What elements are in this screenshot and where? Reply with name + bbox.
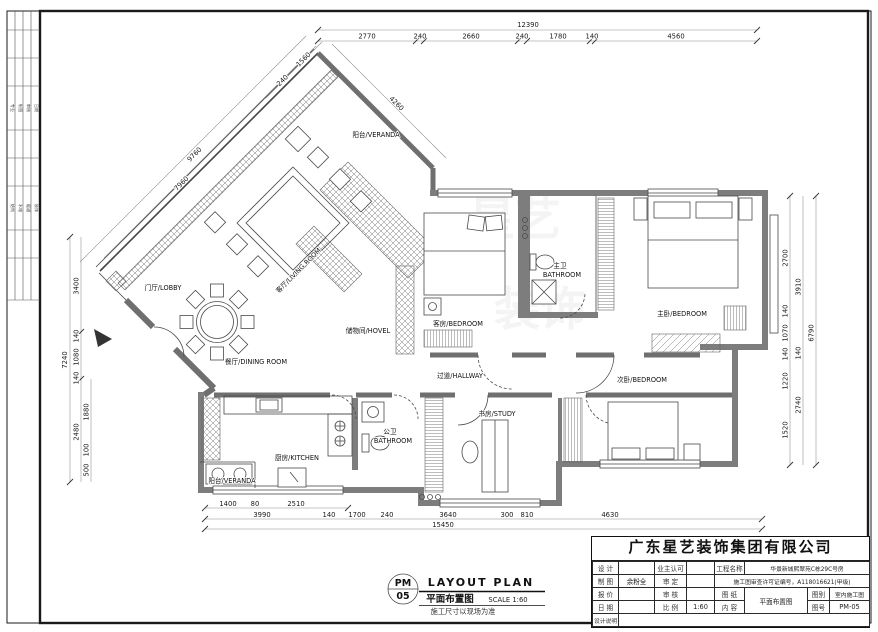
number-label: 图号 — [808, 601, 830, 614]
svg-text:2510: 2510 — [287, 500, 304, 508]
strip-text: 审核 — [25, 104, 32, 113]
svg-text:140: 140 — [323, 511, 336, 519]
svg-text:2700: 2700 — [782, 249, 790, 266]
draft-label: 制 图 — [593, 575, 619, 588]
svg-text:1220: 1220 — [782, 372, 790, 389]
quote-value — [619, 588, 655, 601]
svg-text:6790: 6790 — [808, 324, 816, 341]
svg-text:140: 140 — [73, 330, 81, 343]
label-hallway: 过道/HALLWAY — [437, 371, 484, 380]
svg-text:3640: 3640 — [439, 511, 456, 519]
svg-text:80: 80 — [251, 500, 260, 508]
title-block-table: 设 计 业主认可 工程名称 华景新城熙翠苑C栋29C号房 制 图 余粉全 审 定… — [592, 561, 870, 627]
svg-text:4560: 4560 — [667, 33, 684, 41]
svg-text:140: 140 — [73, 372, 81, 385]
svg-text:15450: 15450 — [432, 521, 454, 529]
svg-text:240: 240 — [381, 511, 394, 519]
project-label: 工程名称 — [715, 562, 745, 575]
owner-value — [687, 562, 715, 575]
svg-text:4260: 4260 — [387, 95, 405, 113]
svg-text:240: 240 — [516, 33, 529, 41]
stamp: PM 05 LAYOUT PLAN 平面布置图 SCALE 1:60 施工尺寸以… — [388, 574, 545, 616]
label-public-bath-en: BATHROOM — [374, 437, 412, 445]
svg-text:4630: 4630 — [601, 511, 618, 519]
strip-text: 暖通 — [25, 204, 32, 213]
strip-text: 专业 — [9, 104, 16, 112]
category-value: 室内施工图 — [830, 588, 870, 601]
strip-text: 制图 — [17, 104, 24, 112]
svg-text:1080: 1080 — [73, 348, 81, 365]
date-value — [619, 601, 655, 614]
quote-label: 报 价 — [593, 588, 619, 601]
owner-label: 业主认可 — [655, 562, 687, 575]
svg-text:3910: 3910 — [795, 278, 803, 295]
svg-text:140: 140 — [795, 347, 803, 360]
review-label: 审 核 — [655, 588, 687, 601]
sheet-label: 图 纸 — [715, 588, 745, 601]
svg-text:3990: 3990 — [253, 511, 270, 519]
scale-value: 1:60 — [687, 601, 715, 614]
stamp-code-bottom: 05 — [396, 591, 409, 602]
category-label: 图别 — [808, 588, 830, 601]
approve-label: 审 定 — [655, 575, 687, 588]
label-dining: 餐厅/DINING ROOM — [225, 357, 287, 366]
svg-text:2740: 2740 — [795, 396, 803, 413]
svg-text:140: 140 — [586, 33, 599, 41]
stamp-scale: SCALE 1:60 — [488, 596, 527, 604]
project-value: 华景新城熙翠苑C栋29C号房 — [745, 562, 870, 575]
stamp-title-en: LAYOUT PLAN — [428, 576, 534, 589]
label-study: 书房/STUDY — [478, 409, 516, 418]
content-label: 内 容 — [715, 601, 745, 614]
label-second-bedroom: 次卧/BEDROOM — [617, 375, 667, 384]
svg-text:1780: 1780 — [549, 33, 566, 41]
sheet-value: 平面布置图 — [745, 588, 808, 614]
svg-text:2770: 2770 — [358, 33, 375, 41]
note-value — [619, 614, 870, 627]
label-lobby: 门厅/LOBBY — [145, 283, 183, 292]
svg-text:2660: 2660 — [462, 33, 479, 41]
scale-label: 比 例 — [655, 601, 687, 614]
svg-text:7240: 7240 — [61, 351, 69, 368]
label-living: 客厅/LIVING ROOM — [274, 246, 323, 295]
svg-text:300: 300 — [501, 511, 514, 519]
svg-text:100: 100 — [83, 444, 91, 457]
entry-arrow — [94, 329, 112, 347]
review-value — [687, 588, 715, 601]
permit-value: 施工图审查许可证编号，A118016621(甲级) — [715, 575, 870, 588]
svg-text:1700: 1700 — [348, 511, 365, 519]
strip-text: 装饰 — [33, 204, 40, 212]
drawing-sheet: 专业 制图 审核 日期 结构 水电 暖通 装饰 星艺 装饰 — [0, 0, 878, 632]
number-value: PM-05 — [830, 601, 870, 614]
label-kitchen: 厨房/KITCHEN — [275, 453, 319, 462]
label-master-bath-cn: 主卫 — [553, 261, 567, 270]
label-hovel: 储物间/HOVEL — [346, 326, 391, 335]
label-public-bath-cn: 公卫 — [383, 428, 397, 436]
svg-text:1070: 1070 — [782, 324, 790, 341]
svg-text:1400: 1400 — [219, 500, 236, 508]
approve-value — [687, 575, 715, 588]
svg-text:810: 810 — [521, 511, 534, 519]
svg-text:1880: 1880 — [83, 403, 91, 420]
company-name: 广东星艺装饰集团有限公司 — [592, 537, 869, 561]
svg-text:140: 140 — [782, 348, 790, 361]
label-veranda-bottom: 阳台/VERANDA — [208, 476, 256, 485]
title-block: 广东星艺装饰集团有限公司 设 计 业主认可 工程名称 华景新城熙翠苑C栋29C号… — [591, 536, 870, 628]
stamp-title-cn: 平面布置图 — [426, 593, 474, 605]
stamp-code-top: PM — [395, 578, 411, 589]
svg-text:500: 500 — [83, 464, 91, 477]
design-label: 设 计 — [593, 562, 619, 575]
svg-text:12390: 12390 — [517, 21, 539, 29]
signature-strip: 专业 制图 审核 日期 结构 水电 暖通 装饰 — [7, 11, 40, 300]
svg-text:3400: 3400 — [73, 277, 81, 294]
date-label: 日 期 — [593, 601, 619, 614]
svg-text:140: 140 — [782, 305, 790, 318]
strip-text: 日期 — [33, 104, 39, 112]
strip-text: 结构 — [9, 204, 16, 212]
label-veranda-top: 阳台/VERANDA — [352, 130, 400, 139]
strip-text: 水电 — [18, 204, 24, 213]
label-master-bath-en: BATHROOM — [543, 271, 581, 279]
svg-text:2480: 2480 — [73, 423, 81, 440]
svg-text:240: 240 — [414, 33, 427, 41]
draft-value: 余粉全 — [619, 575, 655, 588]
svg-text:1520: 1520 — [782, 421, 790, 438]
stamp-note: 施工尺寸以现场为准 — [431, 607, 496, 616]
note-label: 设计说明 — [593, 614, 619, 627]
label-guest-bedroom: 客房/BEDROOM — [433, 319, 483, 328]
design-value — [619, 562, 655, 575]
label-master-bedroom: 主卧/BEDROOM — [657, 309, 707, 318]
